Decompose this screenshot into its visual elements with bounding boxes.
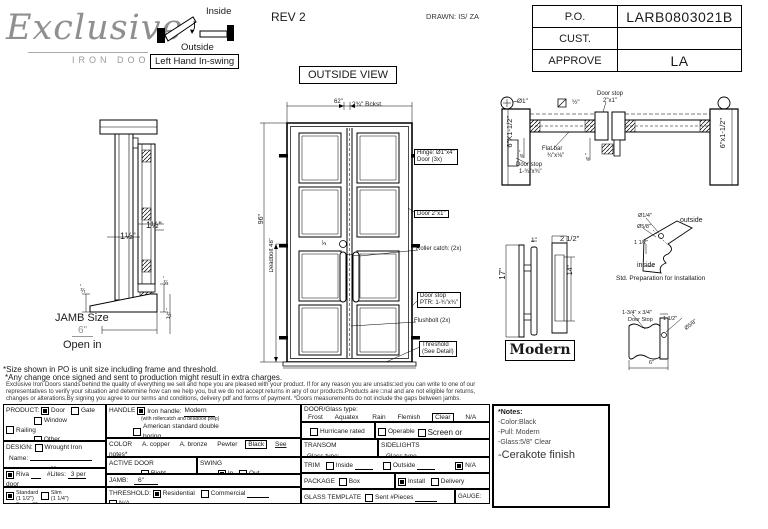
prep-dia14-dim: Ø1/4" — [638, 213, 652, 219]
checkbox-install[interactable]: Install — [398, 477, 425, 487]
handle-section-label: HANDLE — [109, 407, 135, 414]
spec-sheet: Exclusive IRON DOORS Inside Outside Left… — [0, 0, 768, 529]
drawn-by-label: DRAWN: IS/ ZA — [426, 12, 479, 21]
handle-cell: HANDLE Iron handle:Modern (with rollerca… — [106, 404, 301, 438]
sidelights-label: SIDELIGHTS — [381, 442, 420, 449]
glass-selected[interactable]: Clear — [432, 413, 454, 422]
swing-type-label: Left Hand In-swing — [150, 54, 239, 69]
checkbox-window[interactable]: Window — [34, 416, 67, 426]
jamb-form-value: 6" — [134, 477, 158, 485]
glass-template-label: GLASS TEMPLATE — [304, 494, 361, 501]
elevation-width-dim: 62" — [334, 99, 343, 105]
gauge-cell: GAUGE: 14 — [455, 489, 490, 504]
checkbox-american-boring[interactable]: American standard double boring — [109, 422, 233, 438]
glass-template-cell: GLASS TEMPLATE Sent #Pieces N/A — [301, 489, 455, 504]
glass-rain[interactable]: Rain — [372, 414, 385, 421]
color-selected[interactable]: Black — [245, 440, 267, 449]
revision-label: REV 2 — [271, 10, 306, 24]
glass-na[interactable]: N/A — [465, 414, 476, 421]
jamb-cell: JAMB: 6" — [106, 474, 301, 487]
door-tube-callout: Door 2"x1" — [414, 210, 449, 218]
flushbolt-callout: Flushbolt (2x) — [414, 318, 450, 324]
checkbox-residential[interactable]: Residential — [153, 489, 195, 499]
prep-outside-label: outside — [680, 217, 703, 224]
checkbox-delivery[interactable]: Delivery — [431, 477, 464, 487]
approve-value: LA — [618, 50, 742, 72]
handle-depth-dim: 2 1/2" — [560, 234, 579, 243]
handle-top-dim: 1" — [531, 237, 537, 244]
lites-label: #Lites: — [47, 471, 66, 478]
po-table: P.O. LARB0803021B CUST. APPROVE LA — [532, 5, 742, 72]
color-label: COLOR — [109, 441, 132, 448]
active-door-label: ACTIVE DOOR — [109, 460, 154, 467]
plan-flatbar-callout: Flat bar¾"x⅛" — [542, 146, 564, 160]
threshold-label: THRESHOLD: — [109, 490, 151, 497]
design-label: DESIGN: — [6, 444, 33, 451]
frame-profile-cell: Standard(1 1/2") Slim(1 1/4") Super Slim… — [3, 487, 106, 504]
glass-aquatex[interactable]: Aquatex — [335, 414, 359, 421]
handle-inner-dim: 14" — [567, 265, 574, 275]
checkbox-trim-outside[interactable]: Outside — [383, 461, 435, 471]
checkbox-operable[interactable]: Operable — [378, 427, 415, 437]
threshold-cell: THRESHOLD: Residential Commercial N/A — [106, 487, 301, 504]
roller-catch-callout: Roller catch: (2x) — [416, 246, 461, 252]
plan-jamb-left-dim: 6"X1-1/2" — [505, 116, 514, 148]
handle-height-dim: 17" — [498, 268, 507, 280]
notes-title: *Notes: — [498, 409, 604, 416]
threshold-callout: Threshold(See Detail) — [419, 341, 457, 357]
jamb-dim-sill-b: 1½" — [166, 308, 172, 319]
color-bronze[interactable]: A. bronze — [180, 441, 208, 448]
jamb-dim-mid: 1½" — [120, 231, 136, 241]
glass-type-label: DOOR/Glass type: — [304, 406, 358, 413]
plan-doorstop-bottom-callout: Door stop1-¾"x¾" — [516, 162, 542, 176]
checkbox-box[interactable]: Box — [339, 477, 360, 487]
plan-doorstop-top-callout: Door stop2"x1" — [597, 91, 623, 105]
checkbox-screen-or[interactable]: Screen or — [418, 427, 463, 439]
plan-square-dim: ½" — [572, 99, 580, 106]
checkbox-trim-na[interactable]: N/A — [455, 461, 476, 471]
notes-panel: *Notes: -Color:Black -Pull: Modern -Glas… — [492, 404, 610, 508]
jamb-dim-sill-a: ½" — [163, 276, 169, 284]
jamb-dim-side: ½" — [80, 284, 86, 292]
approve-label: APPROVE — [533, 50, 618, 72]
prep-dia58-dim: Ø5/8" — [637, 224, 651, 230]
checkbox-gate[interactable]: Gate — [71, 406, 95, 416]
disclaimer-body: Exclusive Iron Doors stands behind the q… — [6, 382, 484, 404]
open-in-label: Open in — [63, 339, 102, 351]
stopdetail-size-line1: 1-3/4" x 3/4" — [622, 310, 652, 316]
swing-cell: SWING In Out — [197, 457, 301, 474]
notes-finish: -Cerakote finish — [498, 449, 604, 461]
po-number: LARB0803021B — [618, 6, 742, 28]
product-cell: PRODUCT: Door Gate Window Railing Other — [3, 404, 106, 441]
stopdetail-6-dim: 6" — [649, 360, 654, 366]
checkbox-super-slim[interactable]: Super Slim(1/2") SDL — [6, 502, 43, 504]
cust-label: CUST. — [533, 28, 618, 50]
riva-cell: Riva #Lites: 3 per door — [3, 468, 106, 487]
color-copper[interactable]: A. copper — [142, 441, 170, 448]
checkbox-riva[interactable]: Riva — [6, 470, 41, 480]
checkbox-wrought-iron[interactable]: Wrought Iron — [35, 443, 82, 453]
swing-outside-label: Outside — [181, 42, 214, 53]
notes-glass: -Glass:5/8" Clear — [498, 439, 604, 446]
jamb-size-value: 6" — [72, 325, 93, 337]
color-pewter[interactable]: Pewter — [217, 441, 237, 448]
glass-flemish[interactable]: Flemish — [397, 414, 420, 421]
transom-label: TRANSOM — [304, 442, 337, 449]
jamb-dim-top: 1½" — [146, 220, 162, 230]
checkbox-standard[interactable]: Standard(1 1/2") — [6, 490, 38, 502]
plan-jamb-right-dim: 6"x1-1/2" — [718, 118, 727, 148]
checkbox-template-na[interactable]: N/A — [304, 503, 325, 504]
jamb-form-label: JAMB: — [109, 477, 128, 484]
checkbox-commercial[interactable]: Commercial — [201, 489, 270, 499]
stopdetail-112-dim: 1 1/2" — [663, 316, 677, 322]
transom-cell: TRANSOM Glass type: — [301, 439, 378, 457]
prep-caption: Std. Preparation for Installation — [616, 275, 705, 282]
package-label: PACKAGE — [304, 478, 335, 485]
notes-pull: -Pull: Modern — [498, 429, 604, 436]
swing-label: SWING — [200, 460, 222, 467]
sidelights-cell: SIDELIGHTS Glass type Screen — [378, 439, 490, 457]
design-name-blank[interactable] — [30, 453, 92, 461]
operable-cell: Operable Screen or Fixed — [375, 422, 490, 439]
active-door-cell: ACTIVE DOOR Right Left — [106, 457, 197, 474]
checkbox-railing[interactable]: Railing — [6, 426, 36, 436]
handle-style-label: Modern — [505, 340, 575, 361]
elevation-height-dim: 96" — [258, 214, 265, 224]
checkbox-door[interactable]: Door — [41, 406, 65, 416]
gauge-value: GAUGE: 14 — [458, 494, 481, 504]
trim-label: TRIM — [304, 462, 320, 469]
elevation-deadbolt-dim: Deadbolt 48" — [269, 238, 275, 273]
notes-color: -Color:Black — [498, 419, 604, 426]
plan-te-a-dim: ⅜" — [519, 150, 525, 158]
prep-inside-label: inside — [637, 262, 655, 269]
po-label: P.O. — [533, 6, 618, 28]
stopdetail-size-line2: Door Stop — [628, 317, 653, 323]
door-stop-callout: Door stopPTR: 1-¾"x¾" — [417, 292, 461, 308]
glass-type-cell: DOOR/Glass type: Frost Aquatex Rain Flem… — [301, 404, 490, 422]
plan-te-b-dim: ⅜" — [585, 153, 591, 161]
package-cell: PACKAGE Box No box — [301, 473, 395, 489]
elevation-handle-dim: 3" — [322, 240, 328, 245]
plan-dia1-dim: Ø1" — [517, 98, 528, 105]
product-label: PRODUCT: — [6, 407, 39, 414]
design-cell: DESIGN: Wrought Iron Name: or — [3, 441, 106, 468]
checkbox-threshold-na[interactable]: N/A — [109, 499, 146, 504]
swing-inside-label: Inside — [206, 6, 231, 17]
outside-view-title: OUTSIDE VIEW — [299, 66, 397, 84]
logo-underline — [28, 52, 148, 53]
jamb-size-label: JAMB Size — [55, 312, 109, 324]
checkbox-sent-pieces[interactable]: Sent #Pieces — [365, 493, 437, 503]
elevation-backset-dim: 2¾" Bckst. — [352, 101, 383, 108]
handle-and-details-drawing — [496, 208, 768, 390]
hinge-callout: Hinge: Ø1"x4"Door (3x) — [414, 149, 458, 165]
glass-frost[interactable]: Frost — [308, 414, 323, 421]
color-cell: COLOR A. copper A. bronze Pewter Black S… — [106, 438, 301, 457]
checkbox-hurricane[interactable]: Hurricane rated — [304, 427, 365, 437]
disclaimer-line2: *Any change once signed and sent to prod… — [5, 373, 282, 382]
package-delivery-cell: Install Delivery LTL — [395, 473, 490, 489]
trim-cell: TRIM Inside Outside N/A — [301, 457, 490, 473]
design-name-label: Name: — [6, 455, 28, 462]
checkbox-slim[interactable]: Slim(1 1/4") — [41, 490, 69, 502]
hurricane-cell: Hurricane rated — [301, 422, 375, 439]
cust-value — [618, 28, 742, 50]
checkbox-trim-inside[interactable]: Inside — [326, 461, 373, 471]
prep-112-dim: 1 1/2" — [634, 240, 648, 246]
